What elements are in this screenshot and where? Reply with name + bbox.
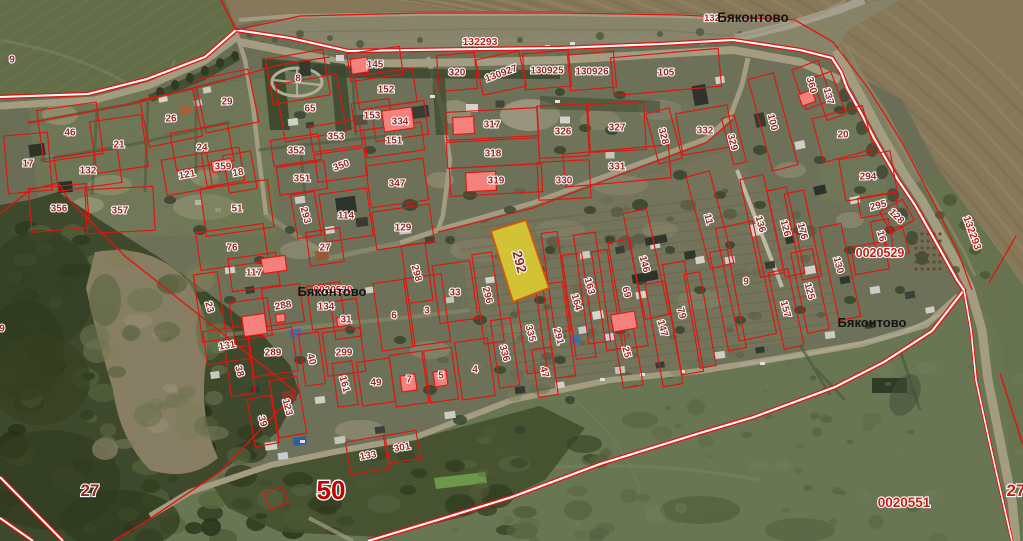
- svg-text:330: 330: [556, 176, 573, 187]
- svg-text:5: 5: [438, 371, 444, 382]
- svg-text:46: 46: [64, 128, 76, 139]
- svg-text:352: 352: [288, 146, 305, 157]
- svg-text:356: 356: [51, 204, 68, 215]
- svg-text:153: 153: [364, 111, 381, 122]
- svg-text:117: 117: [246, 268, 263, 279]
- svg-text:21: 21: [113, 140, 125, 151]
- svg-text:20: 20: [837, 130, 849, 141]
- svg-text:Бяконтово: Бяконтово: [838, 315, 907, 330]
- svg-text:132: 132: [80, 166, 97, 177]
- svg-text:0020529: 0020529: [856, 246, 905, 260]
- svg-text:50: 50: [317, 475, 346, 505]
- svg-text:3: 3: [424, 306, 430, 317]
- svg-text:332: 332: [697, 126, 714, 137]
- svg-text:317: 317: [484, 120, 501, 131]
- svg-text:17: 17: [22, 159, 34, 170]
- svg-text:152: 152: [378, 85, 395, 96]
- svg-text:Бяконтово: Бяконтово: [717, 10, 789, 25]
- svg-text:331: 331: [609, 162, 626, 173]
- svg-text:24: 24: [196, 143, 208, 154]
- svg-text:320: 320: [449, 68, 466, 79]
- svg-text:130926: 130926: [575, 67, 609, 78]
- svg-text:151: 151: [386, 136, 403, 147]
- svg-text:326: 326: [555, 127, 572, 138]
- svg-text:130925: 130925: [530, 66, 564, 77]
- svg-text:114: 114: [338, 211, 355, 222]
- svg-text:319: 319: [488, 176, 505, 187]
- svg-text:359: 359: [215, 162, 232, 173]
- svg-text:51: 51: [231, 204, 243, 215]
- svg-text:76: 76: [226, 243, 238, 254]
- svg-text:9: 9: [0, 324, 5, 335]
- svg-text:132293: 132293: [462, 36, 497, 48]
- svg-text:33: 33: [449, 288, 461, 299]
- svg-text:27: 27: [81, 481, 100, 500]
- svg-text:27: 27: [1007, 481, 1023, 500]
- svg-text:4: 4: [472, 365, 478, 376]
- svg-text:327: 327: [609, 123, 626, 134]
- svg-text:357: 357: [112, 206, 129, 217]
- svg-text:31: 31: [340, 315, 352, 326]
- svg-text:134: 134: [318, 302, 335, 313]
- svg-text:65: 65: [304, 104, 316, 115]
- svg-text:145: 145: [367, 60, 384, 71]
- svg-text:105: 105: [658, 68, 675, 79]
- svg-text:8: 8: [295, 74, 301, 85]
- svg-text:294: 294: [860, 172, 877, 183]
- svg-text:351: 351: [294, 174, 311, 185]
- svg-text:347: 347: [389, 179, 406, 190]
- svg-text:353: 353: [328, 132, 345, 143]
- svg-text:129: 129: [395, 223, 412, 234]
- svg-text:9: 9: [743, 277, 749, 288]
- svg-text:289: 289: [265, 348, 282, 359]
- svg-text:9: 9: [9, 55, 15, 66]
- svg-text:318: 318: [485, 149, 502, 160]
- svg-text:334: 334: [392, 117, 409, 128]
- svg-text:6: 6: [391, 311, 397, 322]
- svg-text:49: 49: [370, 378, 382, 389]
- svg-text:26: 26: [165, 114, 177, 125]
- svg-text:27: 27: [319, 243, 331, 254]
- svg-text:Бяконтово: Бяконтово: [298, 284, 367, 299]
- svg-text:0020551: 0020551: [878, 495, 931, 510]
- svg-text:29: 29: [221, 97, 233, 108]
- svg-text:7: 7: [406, 375, 412, 386]
- svg-text:299: 299: [336, 348, 353, 359]
